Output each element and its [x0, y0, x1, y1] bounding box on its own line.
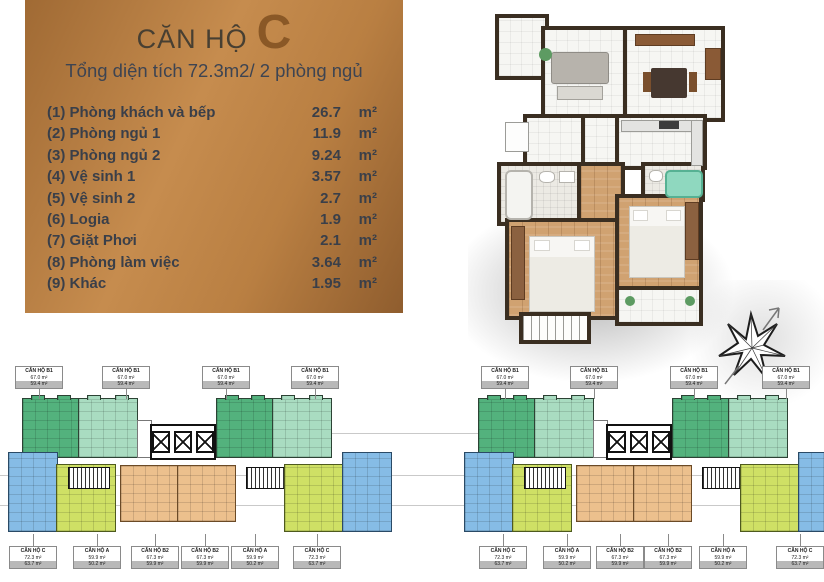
tv-cabinet [557, 86, 603, 100]
room-unit: m² [341, 252, 377, 273]
plant [539, 48, 552, 61]
unit-name: CĂN HỘ B2 [645, 547, 691, 555]
unit-info-panel: CĂN HỘ C Tổng diện tích 72.3m2/ 2 phòng … [25, 0, 403, 313]
unit-net-area: 63.7 m² [10, 561, 56, 568]
unit-net-area: 59.4 m² [571, 381, 617, 388]
elevator-core [150, 424, 216, 460]
room-row: (1) Phòng khách và bếp26.7m² [47, 102, 377, 123]
unit-b1-plan [672, 398, 730, 458]
room-area: 26.7 [289, 102, 341, 123]
unit-b1-plan [478, 398, 536, 458]
duvet [630, 226, 684, 277]
dining-table [651, 68, 687, 98]
building-plan-right [464, 390, 824, 542]
balcony [523, 316, 587, 340]
unit-name: CĂN HỘ B1 [763, 367, 809, 375]
room-unit: m² [341, 102, 377, 123]
unit-net-area: 59.9 m² [597, 561, 643, 568]
kitchen-counter-side [691, 120, 703, 166]
unit-name: CĂN HỘ B2 [132, 547, 178, 555]
unit-callout: CĂN HỘ B267.3 m²59.9 m² [131, 546, 179, 569]
room-row: (5) Vệ sinh 22.7m² [47, 188, 377, 209]
total-area-subtitle: Tổng diện tích 72.3m2/ 2 phòng ngủ [25, 60, 403, 82]
stairs-icon [702, 467, 744, 489]
sofa [551, 52, 609, 84]
unit-callout: CĂN HỘ C72.3 m²63.7 m² [776, 546, 824, 569]
room-area: 2.1 [289, 230, 341, 251]
green-bathtub [665, 170, 703, 198]
elevator-icon [630, 431, 648, 453]
unit-b2-plan [177, 465, 236, 522]
room-area: 1.95 [289, 273, 341, 294]
unit-name: CĂN HỘ B2 [182, 547, 228, 555]
room-unit: m² [341, 273, 377, 294]
room-list: (1) Phòng khách và bếp26.7m² (2) Phòng n… [25, 102, 403, 295]
unit-callout: CĂN HỘ A59.9 m²50.2 m² [543, 546, 591, 569]
unit-name: CĂN HỘ C [480, 547, 526, 555]
unit-b1-plan [78, 398, 138, 458]
unit-callout: CĂN HỘ B167.0 m²59.4 m² [202, 366, 250, 389]
room-unit: m² [341, 123, 377, 144]
room-name: (4) Vệ sinh 1 [47, 166, 289, 187]
room-area: 3.64 [289, 252, 341, 273]
unit-callout: CĂN HỘ B167.0 m²59.4 m² [481, 366, 529, 389]
room-row: (2) Phòng ngủ 111.9m² [47, 123, 377, 144]
unit-callout: CĂN HỘ B267.3 m²59.9 m² [596, 546, 644, 569]
unit-callout: CĂN HỘ C72.3 m²63.7 m² [9, 546, 57, 569]
room-name: (7) Giặt Phơi [47, 230, 289, 251]
unit-net-area: 59.4 m² [16, 381, 62, 388]
unit-b1-plan [534, 398, 594, 458]
unit-callout: CĂN HỘ B167.0 m²59.4 m² [762, 366, 810, 389]
elevator-icon [174, 431, 192, 453]
room-area: 3.57 [289, 166, 341, 187]
unit-name: CĂN HỘ B1 [103, 367, 149, 375]
room-row: (3) Phòng ngủ 29.24m² [47, 145, 377, 166]
wardrobe [511, 226, 525, 300]
unit-name: CĂN HỘ C [10, 547, 56, 555]
unit-net-area: 63.7 m² [294, 561, 340, 568]
unit-callout: CĂN HỘ A59.9 m²50.2 m² [231, 546, 279, 569]
unit-c-plan [342, 452, 392, 532]
loggia [619, 290, 699, 322]
unit-name: CĂN HỘ C [777, 547, 823, 555]
unit-callout: CĂN HỘ B167.0 m²59.4 m² [291, 366, 339, 389]
room-unit: m² [341, 145, 377, 166]
unit-net-area: 50.2 m² [74, 561, 120, 568]
unit-net-area: 59.4 m² [763, 381, 809, 388]
unit-name: CĂN HỘ A [544, 547, 590, 555]
room-row: (9) Khác1.95m² [47, 273, 377, 294]
room-name: (1) Phòng khách và bếp [47, 102, 289, 123]
elevator-icon [196, 431, 214, 453]
brochure-page: CĂN HỘ C Tổng diện tích 72.3m2/ 2 phòng … [0, 0, 824, 582]
plant [685, 296, 695, 306]
room-unit: m² [341, 166, 377, 187]
unit-net-area: 59.9 m² [132, 561, 178, 568]
unit-b2-plan [633, 465, 692, 522]
shelf [635, 34, 695, 46]
unit-b2-plan [120, 465, 179, 522]
unit-net-area: 59.9 m² [645, 561, 691, 568]
stairs-icon [246, 467, 288, 489]
room-row: (4) Vệ sinh 13.57m² [47, 166, 377, 187]
unit-a-plan [740, 464, 800, 532]
unit-net-area: 59.4 m² [103, 381, 149, 388]
room-area: 9.24 [289, 145, 341, 166]
unit-callout: CĂN HỘ B267.3 m²59.9 m² [644, 546, 692, 569]
room-unit: m² [341, 209, 377, 230]
unit-name: CĂN HỘ A [700, 547, 746, 555]
unit-net-area: 50.2 m² [700, 561, 746, 568]
pillow [633, 210, 648, 221]
unit-callout: CĂN HỘ B167.0 m²59.4 m² [102, 366, 150, 389]
unit-callout: CĂN HỘ A59.9 m²50.2 m² [73, 546, 121, 569]
unit-b1-plan [216, 398, 274, 458]
room-name: (5) Vệ sinh 2 [47, 188, 289, 209]
bathtub [505, 170, 533, 220]
chair [689, 72, 697, 92]
unit-net-area: 50.2 m² [544, 561, 590, 568]
title-prefix: CĂN HỘ [137, 24, 248, 55]
desk [705, 48, 721, 80]
unit-b1-plan [728, 398, 788, 458]
unit-name: CĂN HỘ C [294, 547, 340, 555]
toilet [649, 170, 663, 182]
unit-name: CĂN HỘ B1 [203, 367, 249, 375]
kitchen-counter [621, 120, 695, 132]
room-row: (6) Logia1.9m² [47, 209, 377, 230]
room-name: (2) Phòng ngủ 1 [47, 123, 289, 144]
stairs-icon [524, 467, 566, 489]
work-room [527, 118, 585, 166]
duvet [530, 257, 594, 311]
pillow [666, 210, 681, 221]
sink [559, 171, 575, 183]
unit-a-plan [284, 464, 344, 532]
cabinet [505, 122, 529, 152]
room-name: (8) Phòng làm việc [47, 252, 289, 273]
unit-c-plan [8, 452, 58, 532]
unit-net-area: 59.4 m² [671, 381, 717, 388]
unit-c-plan [464, 452, 514, 532]
building-plan-left [8, 390, 398, 542]
room-name: (9) Khác [47, 273, 289, 294]
unit-callout: CĂN HỘ C72.3 m²63.7 m² [293, 546, 341, 569]
unit-callout: CĂN HỘ B167.0 m²59.4 m² [570, 366, 618, 389]
unit-name: CĂN HỘ A [74, 547, 120, 555]
unit-callout: CĂN HỘ B267.3 m²59.9 m² [181, 546, 229, 569]
apartment-floorplan [493, 10, 727, 346]
chair [643, 72, 651, 92]
unit-name: CĂN HỘ B1 [16, 367, 62, 375]
room-row: (7) Giặt Phơi2.1m² [47, 230, 377, 251]
unit-name: CĂN HỘ B1 [671, 367, 717, 375]
elevator-icon [608, 431, 626, 453]
pillow [574, 240, 590, 251]
unit-net-area: 59.4 m² [482, 381, 528, 388]
room-area: 1.9 [289, 209, 341, 230]
bed-2 [629, 206, 685, 278]
bed-1 [529, 236, 595, 312]
unit-c-plan [798, 452, 824, 532]
unit-net-area: 50.2 m² [232, 561, 278, 568]
hall-wood [581, 166, 621, 228]
unit-callout: CĂN HỘ B167.0 m²59.4 m² [670, 366, 718, 389]
stairs-icon [68, 467, 110, 489]
unit-net-area: 63.7 m² [777, 561, 823, 568]
entry-hall [499, 18, 545, 76]
wardrobe [685, 202, 699, 260]
plant [625, 296, 635, 306]
unit-b1-plan [272, 398, 332, 458]
unit-net-area: 59.4 m² [203, 381, 249, 388]
room-row: (8) Phòng làm việc3.64m² [47, 252, 377, 273]
unit-callout: CĂN HỘ A59.9 m²50.2 m² [699, 546, 747, 569]
toilet [539, 171, 555, 183]
unit-net-area: 59.9 m² [182, 561, 228, 568]
unit-net-area: 63.7 m² [480, 561, 526, 568]
elevator-icon [152, 431, 170, 453]
unit-b1-plan [22, 398, 80, 458]
room-area: 2.7 [289, 188, 341, 209]
unit-name: CĂN HỘ A [232, 547, 278, 555]
title-letter: C [257, 14, 292, 52]
room-name: (6) Logia [47, 209, 289, 230]
unit-name: CĂN HỘ B2 [597, 547, 643, 555]
unit-callout: CĂN HỘ C72.3 m²63.7 m² [479, 546, 527, 569]
unit-net-area: 59.4 m² [292, 381, 338, 388]
page-title: CĂN HỘ C [25, 0, 403, 55]
room-unit: m² [341, 230, 377, 251]
pillow [534, 240, 550, 251]
elevator-icon [652, 431, 670, 453]
hallway [585, 118, 619, 170]
unit-name: CĂN HỘ B1 [571, 367, 617, 375]
unit-name: CĂN HỘ B1 [292, 367, 338, 375]
unit-b2-plan [576, 465, 635, 522]
cooktop [659, 121, 679, 129]
room-name: (3) Phòng ngủ 2 [47, 145, 289, 166]
elevator-core [606, 424, 672, 460]
room-unit: m² [341, 188, 377, 209]
unit-callout: CĂN HỘ B167.0 m²59.4 m² [15, 366, 63, 389]
unit-name: CĂN HỘ B1 [482, 367, 528, 375]
room-area: 11.9 [289, 123, 341, 144]
